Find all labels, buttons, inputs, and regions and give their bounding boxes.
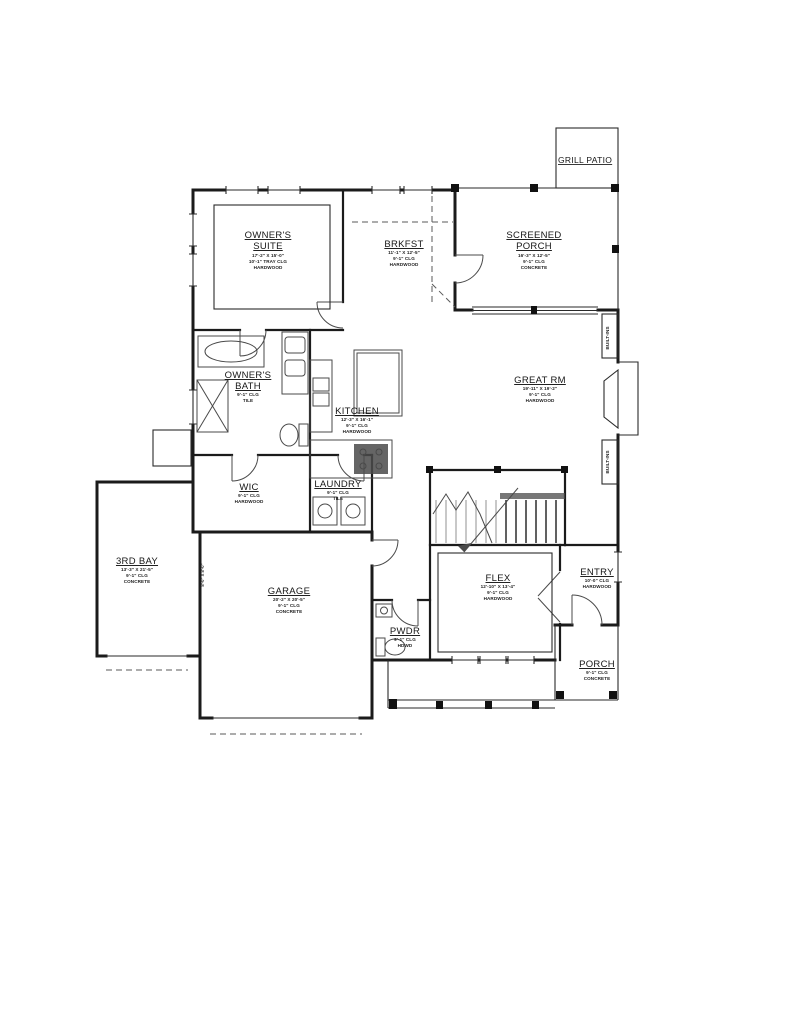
- laundry-fixtures: [313, 497, 365, 525]
- svg-text:9'-1" CLG: 9'-1" CLG: [346, 423, 368, 428]
- porch-column: [556, 691, 564, 699]
- exterior-pad: [153, 430, 191, 466]
- svg-text:ENTRY: ENTRY: [580, 567, 614, 578]
- dashed-lines: [106, 196, 455, 734]
- window: [189, 390, 197, 424]
- room-label-garage: GARAGE 20'-2" X 20'-5" 9'-1" CLG CONCRET…: [268, 586, 310, 614]
- svg-text:SCREENED: SCREENED: [506, 230, 561, 241]
- svg-text:PWDR: PWDR: [390, 626, 420, 637]
- svg-text:11'-1" X 12'-5": 11'-1" X 12'-5": [388, 250, 420, 255]
- built-ins-label-bottom: BUILT-INS: [605, 450, 611, 474]
- svg-text:HARDWOOD: HARDWOOD: [526, 398, 555, 403]
- svg-text:CONCRETE: CONCRETE: [584, 676, 611, 681]
- svg-text:12'-10" X 13'-4": 12'-10" X 13'-4": [481, 584, 516, 589]
- door-pwdr: [392, 600, 418, 626]
- svg-text:LAUNDRY: LAUNDRY: [314, 479, 362, 490]
- stoop-column: [436, 701, 443, 709]
- window: [189, 214, 197, 246]
- porch-column: [611, 184, 619, 192]
- svg-text:OWNER'S: OWNER'S: [245, 230, 292, 241]
- door-bath-wic: [232, 455, 258, 481]
- room-label-kitchen: KITCHEN 12'-3" X 16'-1" 9'-1" CLG HARDWO…: [335, 406, 379, 434]
- svg-text:PORCH: PORCH: [516, 241, 552, 252]
- window: [614, 552, 622, 582]
- room-label-wic: WIC 9'-1" CLG HARDWOOD: [235, 482, 264, 504]
- svg-text:FLEX: FLEX: [486, 573, 511, 584]
- window: [268, 186, 300, 194]
- room-label-pwdr: PWDR 9'-1" CLG HDWD: [390, 626, 420, 648]
- porch-column: [609, 691, 617, 699]
- svg-text:10'-0" CLG: 10'-0" CLG: [585, 578, 610, 583]
- washer-icon: [313, 497, 337, 525]
- svg-text:TILE: TILE: [333, 496, 343, 501]
- stoop-column: [389, 699, 397, 709]
- window: [480, 656, 506, 664]
- svg-text:17'-2" X 15'-0": 17'-2" X 15'-0": [252, 253, 284, 258]
- window: [508, 656, 534, 664]
- grill-patio-name: GRILL PATIO: [558, 155, 612, 165]
- svg-text:TILE: TILE: [243, 398, 253, 403]
- svg-text:CONCRETE: CONCRETE: [521, 265, 548, 270]
- window: [404, 186, 432, 194]
- window: [189, 254, 197, 286]
- room-label-third-bay: 3RD BAY 13'-3" X 21'-5" 9'-1" CLG CONCRE…: [116, 556, 158, 584]
- svg-text:9'-1" CLG: 9'-1" CLG: [586, 670, 608, 675]
- flex-inner-outline: [438, 553, 552, 652]
- stoop-column: [485, 701, 492, 709]
- porch-column: [451, 184, 459, 192]
- svg-text:20'-2" X 20'-5": 20'-2" X 20'-5": [273, 597, 305, 602]
- svg-text:9'-1" CLG: 9'-1" CLG: [237, 392, 259, 397]
- svg-text:19'-11" X 19'-2": 19'-11" X 19'-2": [523, 386, 557, 391]
- svg-text:HDWD: HDWD: [398, 643, 413, 648]
- room-label-screened-porch: SCREENED PORCH 16'-3" X 12'-5" 9'-1" CLG…: [506, 230, 561, 270]
- bath-fixtures: [153, 332, 308, 466]
- room-label-entry: ENTRY 10'-0" CLG HARDWOOD: [580, 567, 614, 589]
- stair-break-line: [433, 492, 492, 543]
- stoop-column: [532, 701, 539, 709]
- dryer-icon: [341, 497, 365, 525]
- floor-plan-drawing: GRILL PATIO OWNER'S SUITE 17'-2" X 15'-0…: [0, 0, 791, 1024]
- window: [226, 186, 258, 194]
- range-icon: [310, 440, 392, 478]
- svg-text:9'-1" CLG: 9'-1" CLG: [529, 392, 551, 397]
- stair-post: [561, 466, 568, 473]
- multi-slide-door: [472, 306, 598, 314]
- svg-text:HARDWOOD: HARDWOOD: [343, 429, 372, 434]
- window: [452, 656, 478, 664]
- svg-text:HARDWOOD: HARDWOOD: [583, 584, 612, 589]
- svg-text:WIC: WIC: [239, 482, 258, 493]
- room-label-great-rm: GREAT RM 19'-11" X 19'-2" 9'-1" CLG HARD…: [514, 375, 566, 403]
- pwdr-sink-icon: [376, 604, 392, 617]
- svg-text:16'-3" X 12'-5": 16'-3" X 12'-5": [518, 253, 550, 258]
- svg-text:CONCRETE: CONCRETE: [276, 609, 303, 614]
- room-label-flex: FLEX 12'-10" X 13'-4" 9'-1" CLG HARDWOOD: [481, 573, 516, 601]
- stair-direction-arrow: [464, 488, 518, 552]
- room-label-laundry: LAUNDRY 9'-1" CLG TILE: [314, 479, 362, 501]
- svg-text:3RD BAY: 3RD BAY: [116, 556, 158, 567]
- svg-text:9'-1" CLG: 9'-1" CLG: [523, 259, 545, 264]
- svg-text:HARDWOOD: HARDWOOD: [484, 596, 513, 601]
- svg-text:9'-1" CLG: 9'-1" CLG: [393, 256, 415, 261]
- svg-text:9'-1" CLG: 9'-1" CLG: [278, 603, 300, 608]
- built-ins-label-top: BUILT-INS: [605, 326, 611, 350]
- room-label-owners-bath: OWNER'S BATH 9'-1" CLG TILE: [225, 370, 272, 403]
- window: [372, 186, 400, 194]
- toilet-icon: [280, 424, 308, 446]
- svg-text:HARDWOOD: HARDWOOD: [390, 262, 419, 267]
- stairs: [433, 488, 565, 552]
- svg-text:9'-1" CLG: 9'-1" CLG: [487, 590, 509, 595]
- svg-text:CONCRETE: CONCRETE: [124, 579, 151, 584]
- room-label-grill-patio: GRILL PATIO: [558, 155, 612, 165]
- svg-text:BRKFST: BRKFST: [384, 239, 423, 250]
- bay-door-size-label: 8'-0" X 8'-0": [200, 563, 205, 586]
- svg-text:SUITE: SUITE: [253, 241, 282, 252]
- room-label-porch: PORCH 9'-1" CLG CONCRETE: [579, 659, 615, 681]
- svg-text:13'-3" X 21'-5": 13'-3" X 21'-5": [121, 567, 153, 572]
- svg-text:PORCH: PORCH: [579, 659, 615, 670]
- svg-text:9'-1" CLG: 9'-1" CLG: [394, 637, 416, 642]
- door-suite-bath: [240, 330, 266, 356]
- stair-post: [494, 466, 501, 473]
- kitchen-sink-counter: [310, 360, 332, 432]
- room-label-brkfst: BRKFST 11'-1" X 12'-5" 9'-1" CLG HARDWOO…: [384, 239, 423, 267]
- svg-text:KITCHEN: KITCHEN: [335, 406, 379, 417]
- svg-text:9'-1" CLG: 9'-1" CLG: [327, 490, 349, 495]
- door-front: [572, 595, 602, 625]
- svg-text:GREAT RM: GREAT RM: [514, 375, 566, 386]
- vanity-sink-icon: [282, 332, 308, 394]
- door-flex-double: [538, 572, 560, 622]
- room-label-owners-suite: OWNER'S SUITE 17'-2" X 15'-0" 10'-1" TRA…: [245, 230, 292, 270]
- porch-column: [530, 184, 538, 192]
- shower-icon: [197, 380, 228, 432]
- svg-text:HARDWOOD: HARDWOOD: [254, 265, 283, 270]
- svg-text:12'-3" X 16'-1": 12'-3" X 16'-1": [341, 417, 373, 422]
- front-stoop: [388, 660, 555, 709]
- door-garage-entry: [372, 540, 398, 566]
- svg-text:OWNER'S: OWNER'S: [225, 370, 272, 381]
- floor-plan-page: GRILL PATIO OWNER'S SUITE 17'-2" X 15'-0…: [0, 0, 791, 1024]
- stair-post: [426, 466, 433, 473]
- door-brkfst-porch: [455, 255, 483, 283]
- svg-text:9'-1" CLG: 9'-1" CLG: [126, 573, 148, 578]
- svg-text:10'-1" TRAY CLG: 10'-1" TRAY CLG: [249, 259, 288, 264]
- fireplace-icon: [604, 362, 638, 435]
- porch-column: [612, 245, 619, 253]
- svg-text:BATH: BATH: [235, 381, 261, 392]
- svg-text:9'-1" CLG: 9'-1" CLG: [238, 493, 260, 498]
- svg-text:GARAGE: GARAGE: [268, 586, 310, 597]
- svg-text:HARDWOOD: HARDWOOD: [235, 499, 264, 504]
